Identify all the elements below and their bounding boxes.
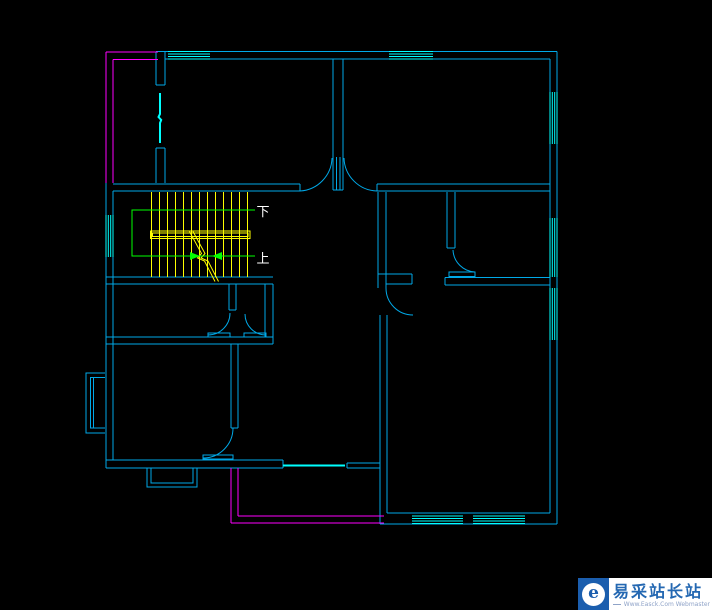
magenta-reference-lines (106, 52, 384, 523)
door-swing-arcs (203, 158, 475, 458)
staircase (151, 192, 251, 282)
logo-glyph: e (588, 585, 599, 602)
stair-label-up: 上 (256, 252, 269, 267)
logo-circle-icon: e (582, 583, 605, 606)
cad-canvas: { "canvas": { "width": 712, "height": 61… (0, 0, 712, 610)
wall-opening-bright-lines (159, 93, 346, 466)
magenta-corner-top-left (106, 52, 158, 183)
floor-plan-drawing: 下 上 (0, 0, 712, 610)
exterior-and-interior-walls (86, 52, 557, 525)
stair-label-down: 下 (256, 205, 269, 220)
magenta-corner-bottom (231, 468, 384, 523)
stair-handrail (151, 231, 251, 239)
logo-icon: e (578, 578, 609, 610)
window-glazing-lines (106, 52, 557, 524)
subtitle-dash-line (613, 604, 621, 605)
watermark-logo: e 易采站长站 Www.Easck.Com Webmaster (578, 578, 712, 610)
wall-lines (86, 52, 557, 525)
logo-subtitle: Www.Easck.Com Webmaster (613, 601, 710, 608)
window-symbols (106, 52, 557, 524)
stair-treads (152, 192, 248, 277)
logo-subtitle-text: Www.Easck.Com Webmaster (624, 601, 710, 608)
door-leaves (203, 272, 475, 459)
logo-title: 易采站长站 (613, 582, 710, 601)
logo-text-block: 易采站长站 Www.Easck.Com Webmaster (609, 578, 712, 610)
